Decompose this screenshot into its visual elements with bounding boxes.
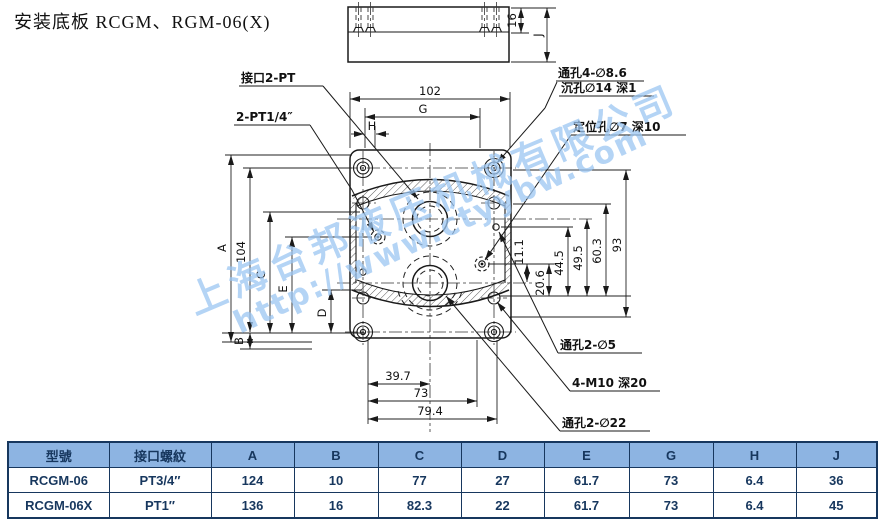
table-row: RCGM-06X PT1″ 136 16 82.3 22 61.7 73 6.4…	[8, 493, 877, 519]
side-view: 16 J	[348, 2, 556, 62]
cell-model: RCGM-06X	[8, 493, 109, 519]
col-header-model: 型號	[8, 442, 109, 468]
dim-11-1: 11.1	[512, 239, 526, 265]
cell-D: 27	[461, 468, 544, 493]
col-header-A: A	[211, 442, 294, 468]
dim-H: H	[368, 119, 377, 133]
svg-text:接口2-PT: 接口2-PT	[241, 70, 296, 85]
svg-text:4-M10 深20: 4-M10 深20	[572, 375, 647, 390]
col-header-E: E	[544, 442, 629, 468]
table-row: RCGM-06 PT3/4″ 124 10 77 27 61.7 73 6.4 …	[8, 468, 877, 493]
dim-73: 73	[414, 386, 429, 400]
col-header-J: J	[796, 442, 877, 468]
side-view-dims: 16 J	[505, 8, 556, 62]
dim-79-4: 79.4	[417, 404, 443, 418]
col-header-D: D	[461, 442, 544, 468]
dim-D: D	[315, 308, 329, 317]
cell-model: RCGM-06	[8, 468, 109, 493]
cell-thread: PT1″	[109, 493, 211, 519]
cell-J: 36	[796, 468, 877, 493]
col-header-G: G	[629, 442, 713, 468]
svg-text:通孔2-∅22: 通孔2-∅22	[562, 415, 626, 430]
col-header-B: B	[294, 442, 378, 468]
dim-39-7: 39.7	[385, 369, 411, 383]
page: 安装底板 RCGM、RGM-06(X)	[0, 0, 880, 524]
dim-16: 16	[505, 13, 519, 28]
table-header-row: 型號 接口螺紋 A B C D E G H J	[8, 442, 877, 468]
col-header-H: H	[713, 442, 796, 468]
svg-text:通孔4-∅8.6: 通孔4-∅8.6	[558, 65, 627, 80]
dim-44-5: 44.5	[552, 250, 566, 276]
cell-E: 61.7	[544, 493, 629, 519]
cell-G: 73	[629, 468, 713, 493]
col-header-C: C	[378, 442, 461, 468]
cell-C: 82.3	[378, 493, 461, 519]
dim-102: 102	[419, 84, 441, 98]
callout-port-2pt: 接口2-PT	[239, 70, 418, 199]
dim-20-6: 20.6	[533, 270, 547, 296]
cell-C: 77	[378, 468, 461, 493]
cell-thread: PT3/4″	[109, 468, 211, 493]
dim-G: G	[419, 102, 428, 116]
dim-93: 93	[610, 238, 624, 253]
cell-H: 6.4	[713, 468, 796, 493]
cell-D: 22	[461, 493, 544, 519]
spec-table: 型號 接口螺紋 A B C D E G H J RCGM-06 PT3/4″ 1…	[7, 441, 878, 519]
technical-drawing: 16 J	[0, 0, 880, 440]
cell-E: 61.7	[544, 468, 629, 493]
cell-A: 124	[211, 468, 294, 493]
dim-49-5: 49.5	[571, 245, 585, 271]
cell-H: 6.4	[713, 493, 796, 519]
dim-60-3: 60.3	[590, 238, 604, 264]
cell-J: 45	[796, 493, 877, 519]
dim-A: A	[215, 244, 229, 252]
cell-B: 10	[294, 468, 378, 493]
svg-text:2-PT1/4″: 2-PT1/4″	[236, 110, 293, 124]
cell-B: 16	[294, 493, 378, 519]
cell-G: 73	[629, 493, 713, 519]
dim-J: J	[531, 33, 545, 37]
cell-A: 136	[211, 493, 294, 519]
svg-text:沉孔∅14 深1: 沉孔∅14 深1	[561, 80, 637, 95]
col-header-thread: 接口螺紋	[109, 442, 211, 468]
svg-text:通孔2-∅5: 通孔2-∅5	[560, 337, 616, 352]
